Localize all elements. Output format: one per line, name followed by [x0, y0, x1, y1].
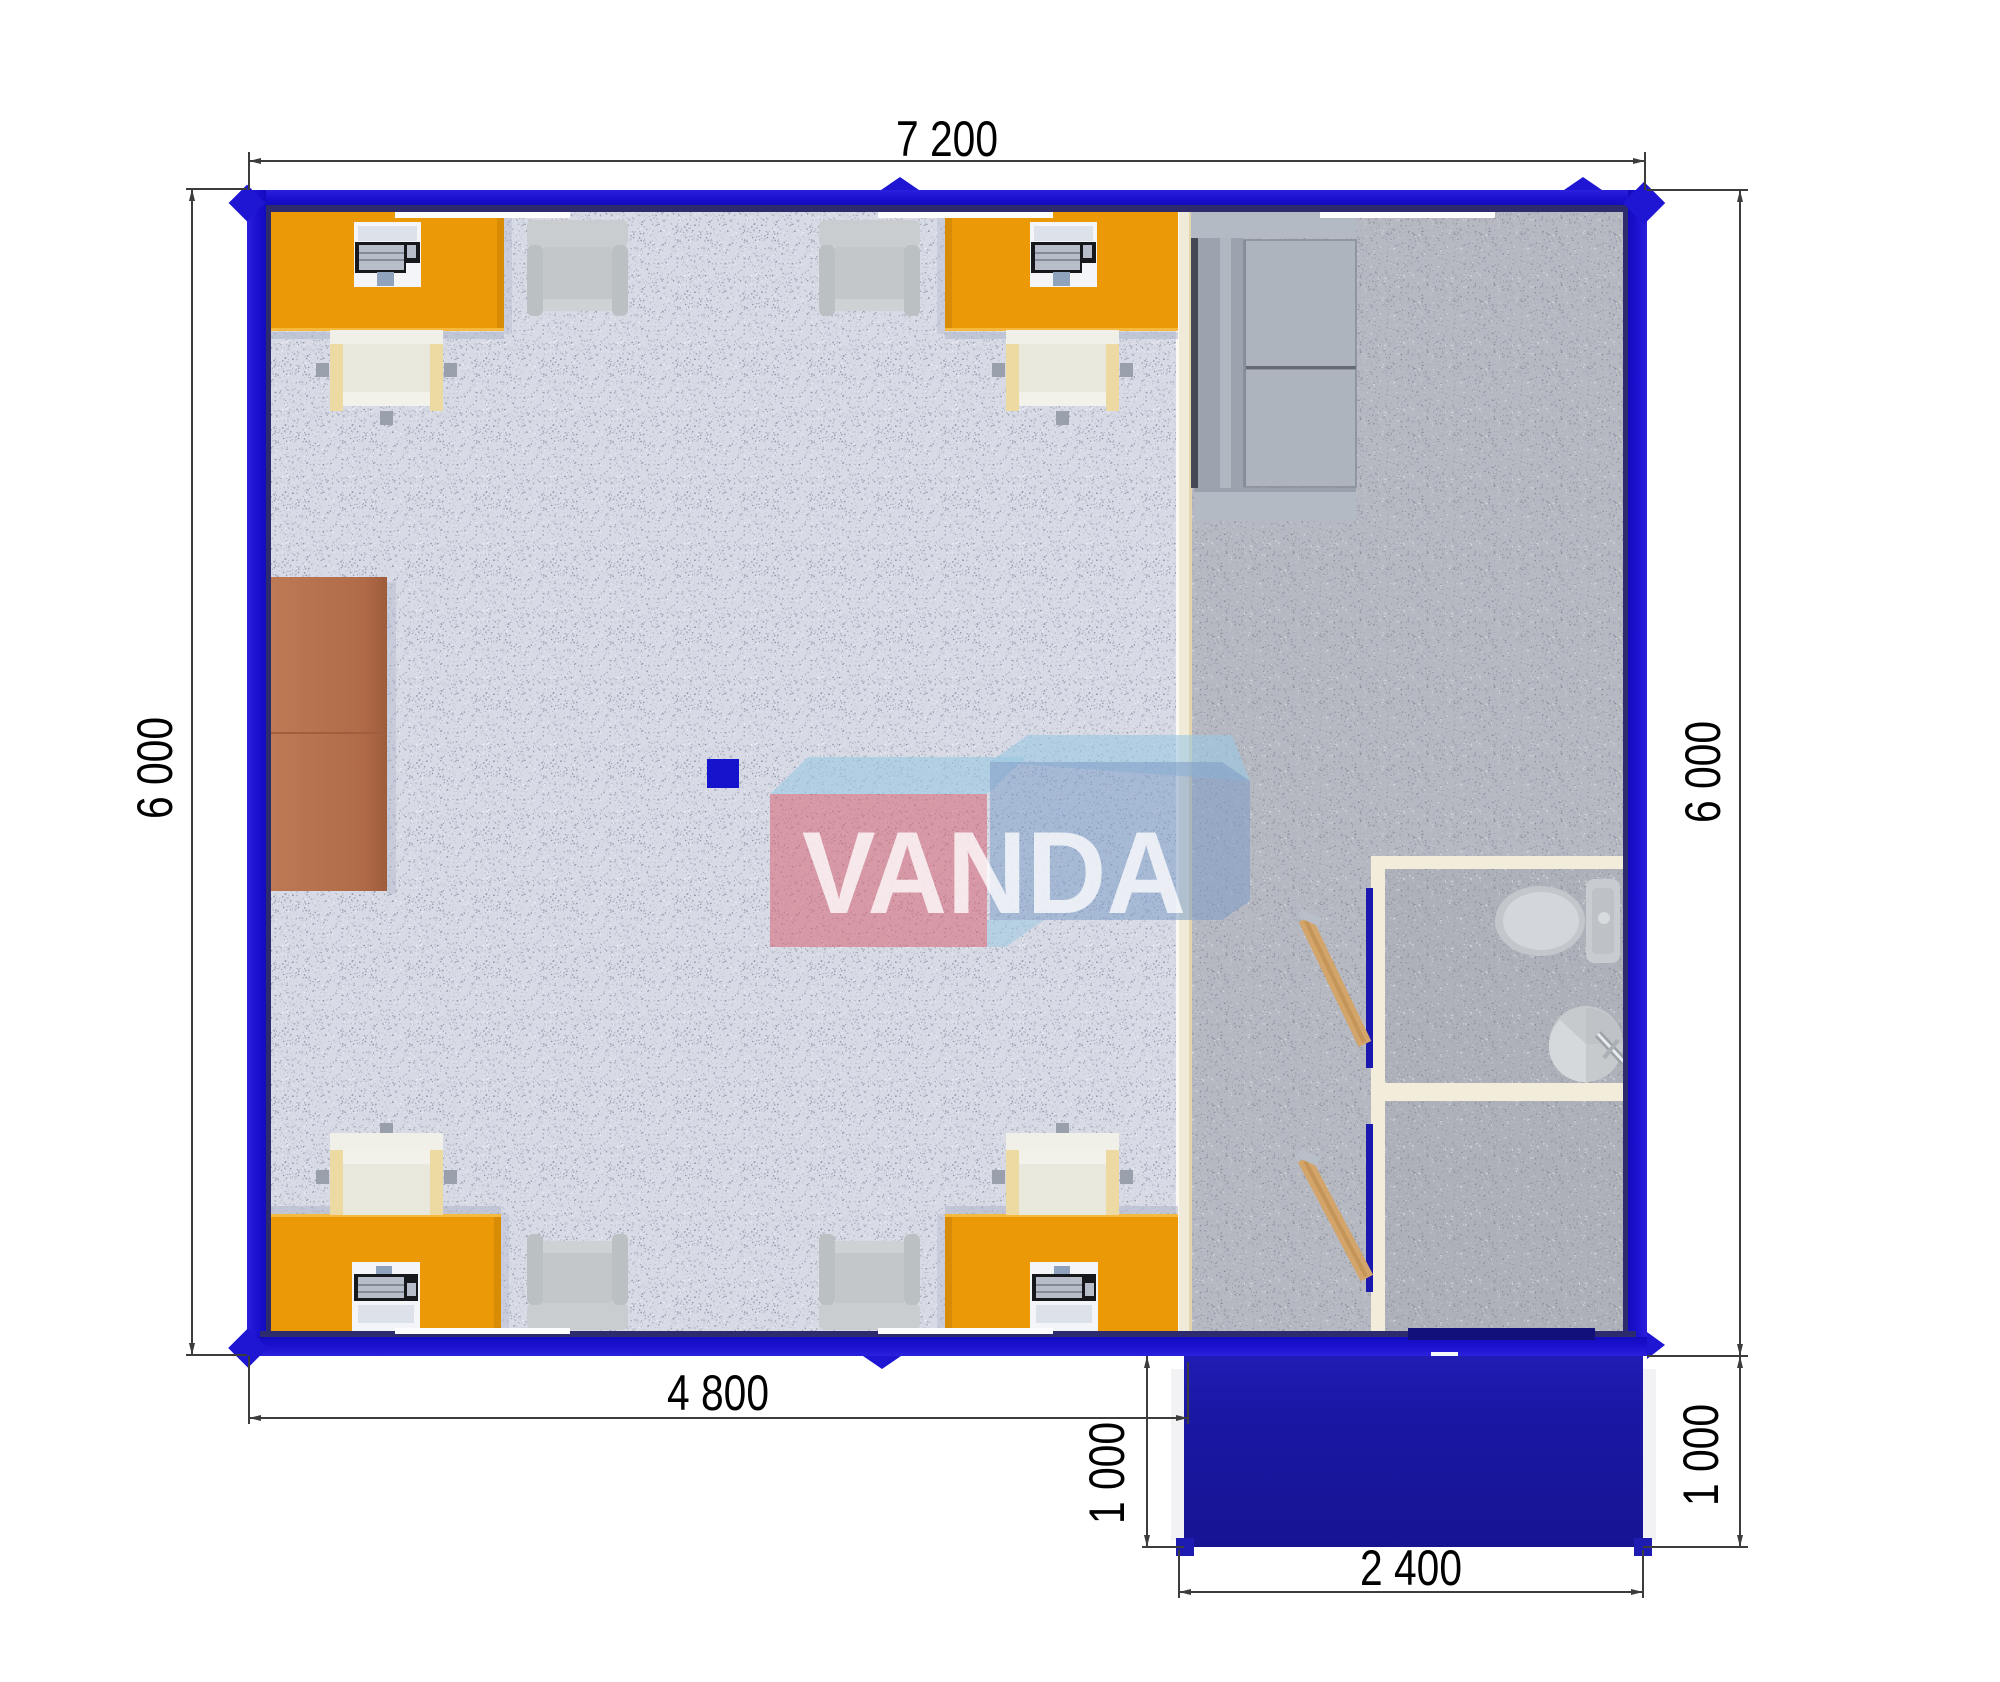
- svg-text:1 000: 1 000: [1079, 1422, 1135, 1524]
- svg-text:1 000: 1 000: [1673, 1404, 1729, 1506]
- svg-text:VANDA: VANDA: [802, 807, 1186, 938]
- svg-text:2 400: 2 400: [1360, 1540, 1462, 1596]
- svg-text:6 000: 6 000: [127, 717, 183, 819]
- svg-text:6 000: 6 000: [1675, 721, 1731, 823]
- svg-text:7 200: 7 200: [896, 111, 998, 167]
- svg-text:4 800: 4 800: [667, 1365, 769, 1421]
